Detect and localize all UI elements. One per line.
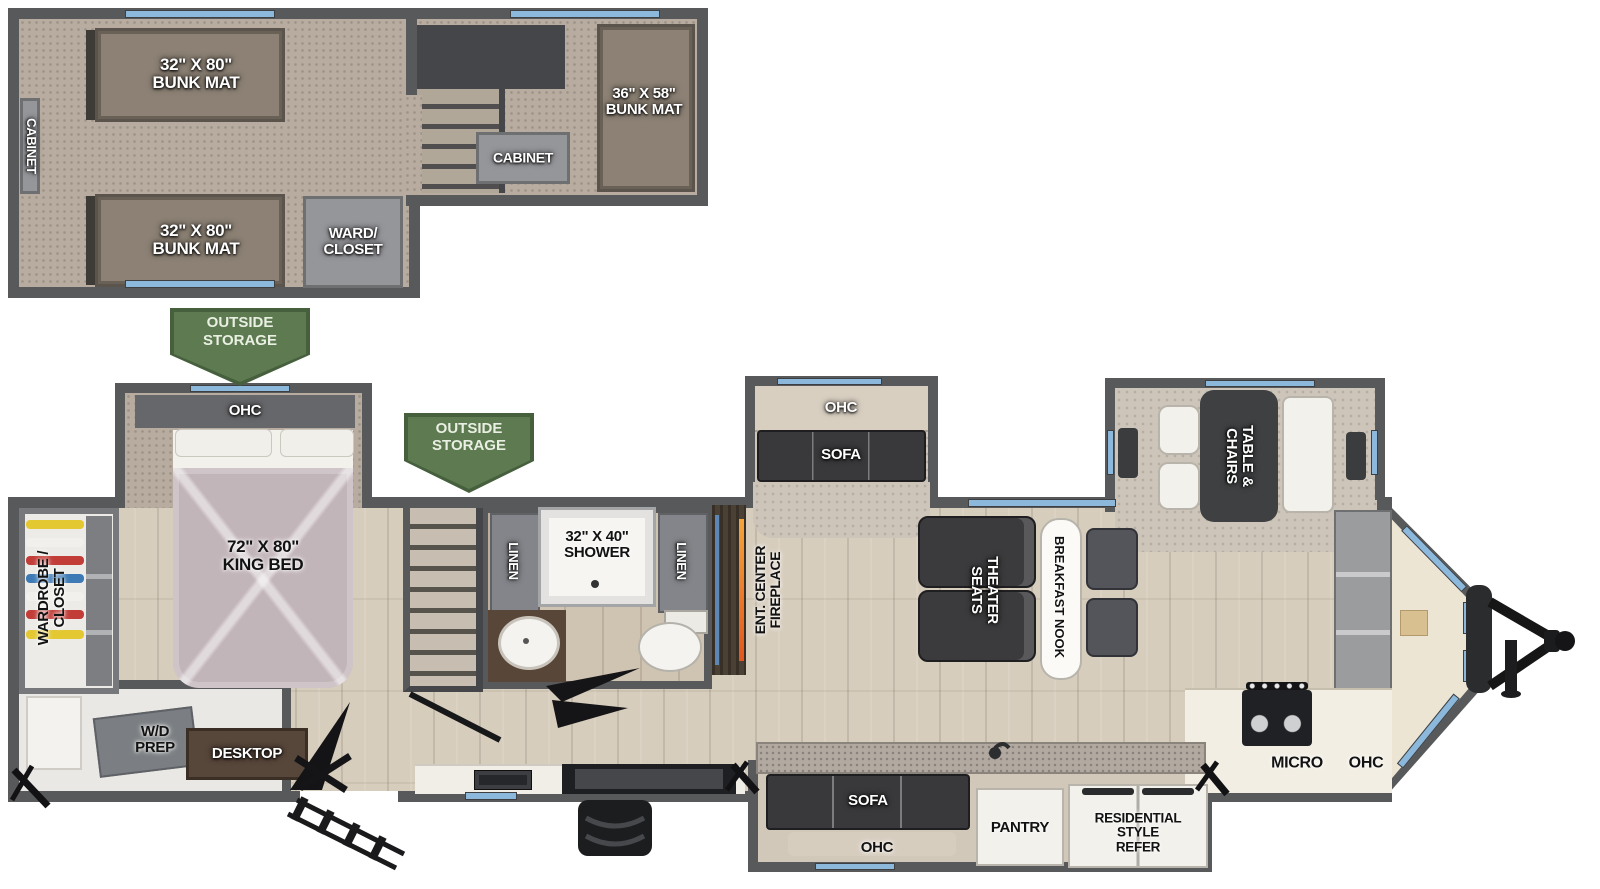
bunk-mat-front-label: 36" X 58" BUNK MAT <box>606 86 682 118</box>
nook-chair-1 <box>1086 528 1138 590</box>
linen-left-label: LINEN <box>506 542 520 580</box>
wd-prep-space <box>26 696 82 770</box>
kitchen-island <box>756 742 1206 774</box>
stove-cooktop <box>1242 690 1312 746</box>
wardrobe-label: WARDROBE / CLOSET <box>36 551 68 646</box>
wardrobe-shelves <box>86 516 112 686</box>
shower-label: 32" X 40" SHOWER <box>564 529 630 561</box>
loft-stairwell-opening <box>417 25 565 89</box>
hanger-yellow-1 <box>26 520 84 529</box>
dinette-chair-2 <box>1158 462 1200 510</box>
living-sofa-label: SOFA <box>821 447 861 463</box>
galley-window-bottom <box>465 792 517 800</box>
kitchen-ohc-label: OHC <box>1349 756 1384 773</box>
refer-handle-left <box>1082 788 1134 795</box>
refer-handle-right <box>1142 788 1194 795</box>
nose-window-front-1 <box>1463 602 1471 634</box>
bedroom-entry-opening <box>300 791 398 802</box>
bedroom-ohc-label: OHC <box>229 403 261 419</box>
bathroom-sink <box>498 616 560 670</box>
ward-closet-label: WARD/ CLOSET <box>323 226 382 258</box>
outside-storage-badge-rear: OUTSIDE STORAGE <box>170 308 310 386</box>
king-bed-label: 72" X 80" KING BED <box>223 538 304 574</box>
entry-door-glass <box>575 769 723 789</box>
breakfast-nook-label: BREAKFAST NOOK <box>1052 536 1066 658</box>
hanger-white-1 <box>26 538 84 547</box>
island-sofa-label: SOFA <box>848 793 888 809</box>
main-stairs <box>403 508 483 692</box>
wd-prep-label: W/D PREP <box>135 724 175 756</box>
living-ohc-label: OHC <box>825 400 857 416</box>
bed-pillow-right <box>280 429 354 457</box>
nose-window-front-2 <box>1463 650 1471 682</box>
rv-floorplan: CABINET 32" X 80" BUNK MAT 32" X 80" BUN… <box>0 0 1600 889</box>
micro-label: MICRO <box>1271 756 1323 773</box>
desktop-label: DESKTOP <box>212 746 282 762</box>
island-ohc-label: OHC <box>861 840 893 856</box>
entry-steps <box>578 800 652 856</box>
loft-window-front-top <box>510 10 660 18</box>
loft-passage <box>404 95 422 195</box>
pantry-label: PANTRY <box>991 820 1049 836</box>
bunk-mat-bottom-label: 32" X 80" BUNK MAT <box>153 222 240 258</box>
ent-center-accent <box>715 515 719 665</box>
dinette-window-top <box>1205 380 1315 387</box>
dinette-chair-1 <box>1158 405 1200 455</box>
linen-right-label: LINEN <box>674 542 688 580</box>
bunk-mat-top-label: 32" X 80" BUNK MAT <box>153 56 240 92</box>
toilet <box>638 622 702 672</box>
bed-pillow-left <box>175 429 272 457</box>
entry-step-box <box>474 770 532 790</box>
living-window-top <box>968 499 1116 507</box>
shower-drain <box>591 580 599 588</box>
stove-knobs <box>1246 682 1308 690</box>
sofa-slide-window <box>777 378 882 385</box>
sink-drain <box>523 638 529 644</box>
fold-out-steps <box>288 798 404 868</box>
bedroom-slide-window <box>190 385 290 392</box>
loft-center-cabinet-label: CABINET <box>493 151 553 166</box>
loft-side-cabinet-label: CABINET <box>24 118 38 174</box>
nook-chair-2 <box>1086 598 1138 657</box>
loft-window-rear-bottom <box>125 280 275 288</box>
fireplace-label: ENT. CENTER FIREPLACE <box>753 546 783 635</box>
kitchen-slide-window <box>815 863 895 870</box>
theater-seats-label: THEATER SEATS <box>968 556 1000 624</box>
fireplace-flame <box>739 519 744 661</box>
outside-storage-rear-label: OUTSIDE STORAGE <box>203 314 277 349</box>
dinette-window-left <box>1107 430 1114 475</box>
hitch-icon <box>1466 585 1575 698</box>
cutting-board <box>1400 610 1428 636</box>
loft-window-rear-top <box>125 10 275 18</box>
dinette-table-label: TABLE & CHAIRS <box>1223 425 1255 487</box>
king-bed <box>173 468 353 688</box>
dinette-handle-right <box>1346 432 1366 480</box>
outside-storage-mid-label: OUTSIDE STORAGE <box>432 420 506 455</box>
dinette-handle-left <box>1118 428 1138 478</box>
kitchen-tall-cabinets <box>1334 510 1392 690</box>
sofa-carpet-patch <box>753 482 930 538</box>
dinette-window-right <box>1371 430 1378 475</box>
outside-storage-badge-mid: OUTSIDE STORAGE <box>404 413 534 493</box>
dinette-bench <box>1282 396 1334 513</box>
refer-label: RESIDENTIAL STYLE REFER <box>1095 812 1182 855</box>
